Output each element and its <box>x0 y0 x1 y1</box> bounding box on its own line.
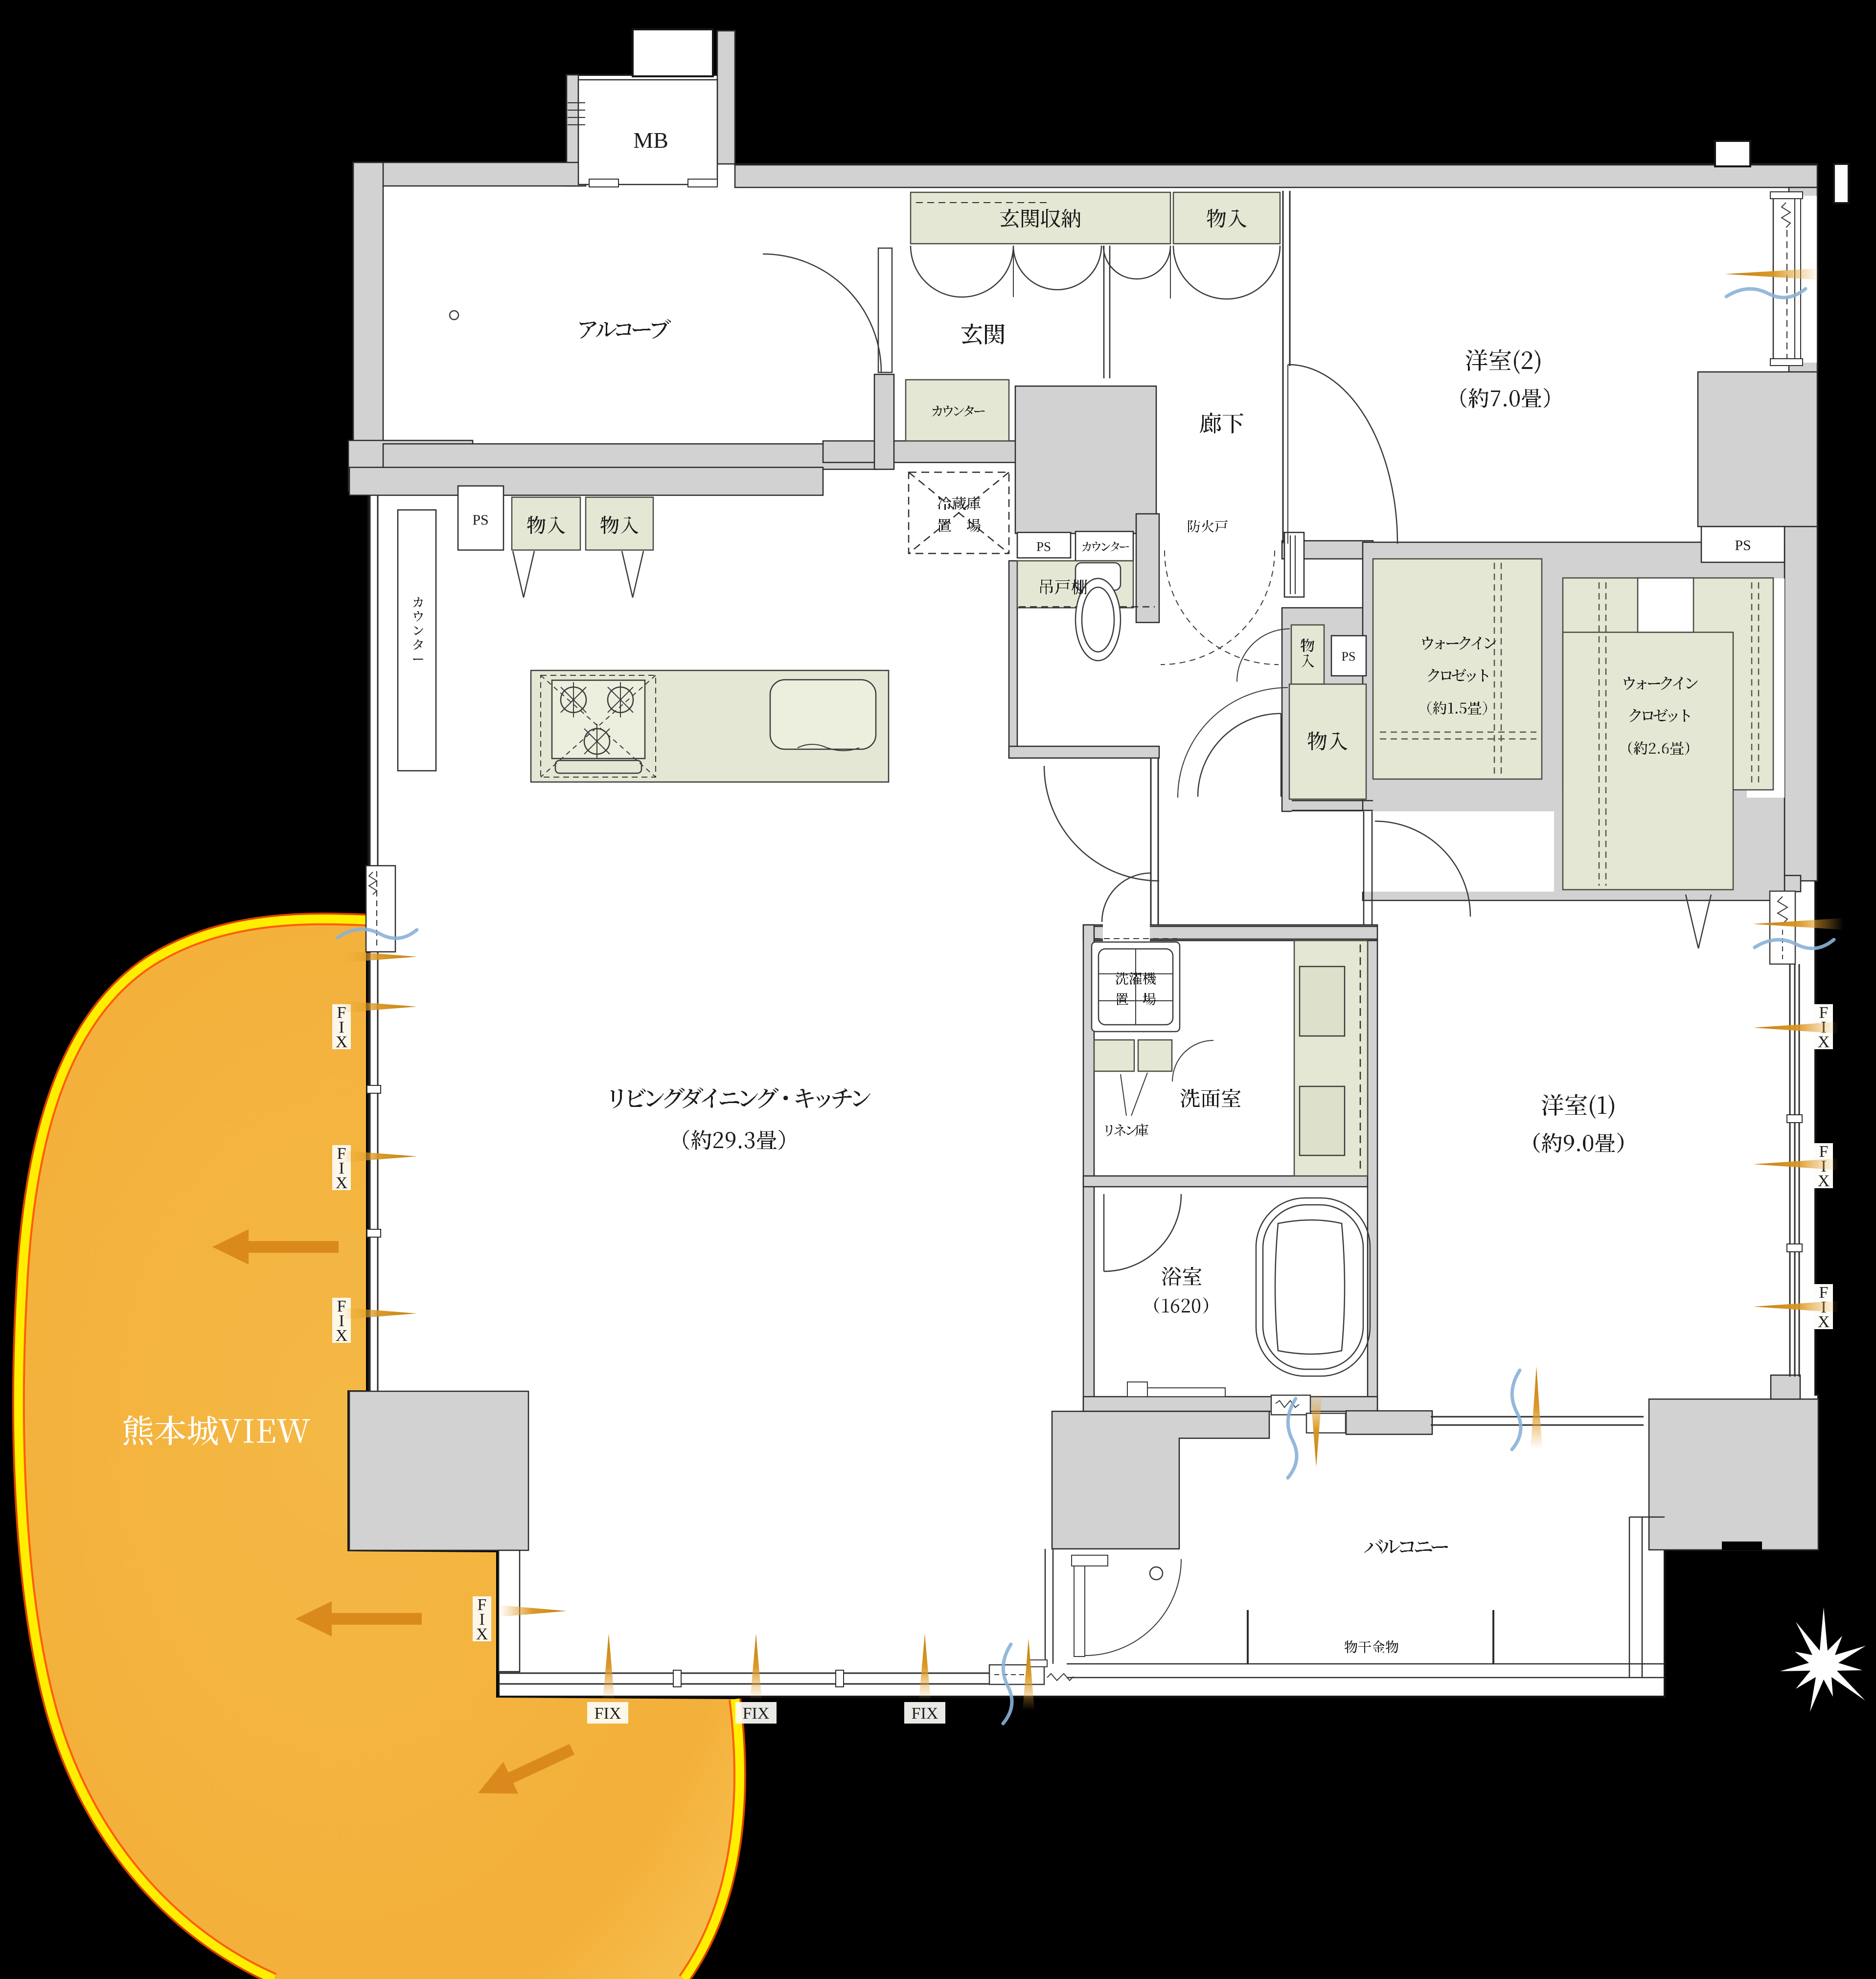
svg-text:MB: MB <box>633 128 668 153</box>
svg-text:FIX: FIX <box>743 1704 770 1723</box>
svg-text:X: X <box>1818 1033 1830 1051</box>
svg-text:X: X <box>336 1327 348 1345</box>
svg-text:X: X <box>336 1033 348 1051</box>
svg-text:PS: PS <box>1735 537 1751 553</box>
svg-text:PS: PS <box>472 512 488 528</box>
svg-text:X: X <box>336 1174 348 1192</box>
svg-text:FIX: FIX <box>912 1704 938 1723</box>
svg-text:PS: PS <box>1036 539 1051 554</box>
svg-text:X: X <box>476 1625 488 1643</box>
svg-text:X: X <box>1818 1313 1830 1331</box>
svg-text:X: X <box>1818 1172 1830 1190</box>
svg-text:PS: PS <box>1342 649 1356 664</box>
svg-text:FIX: FIX <box>595 1704 621 1723</box>
